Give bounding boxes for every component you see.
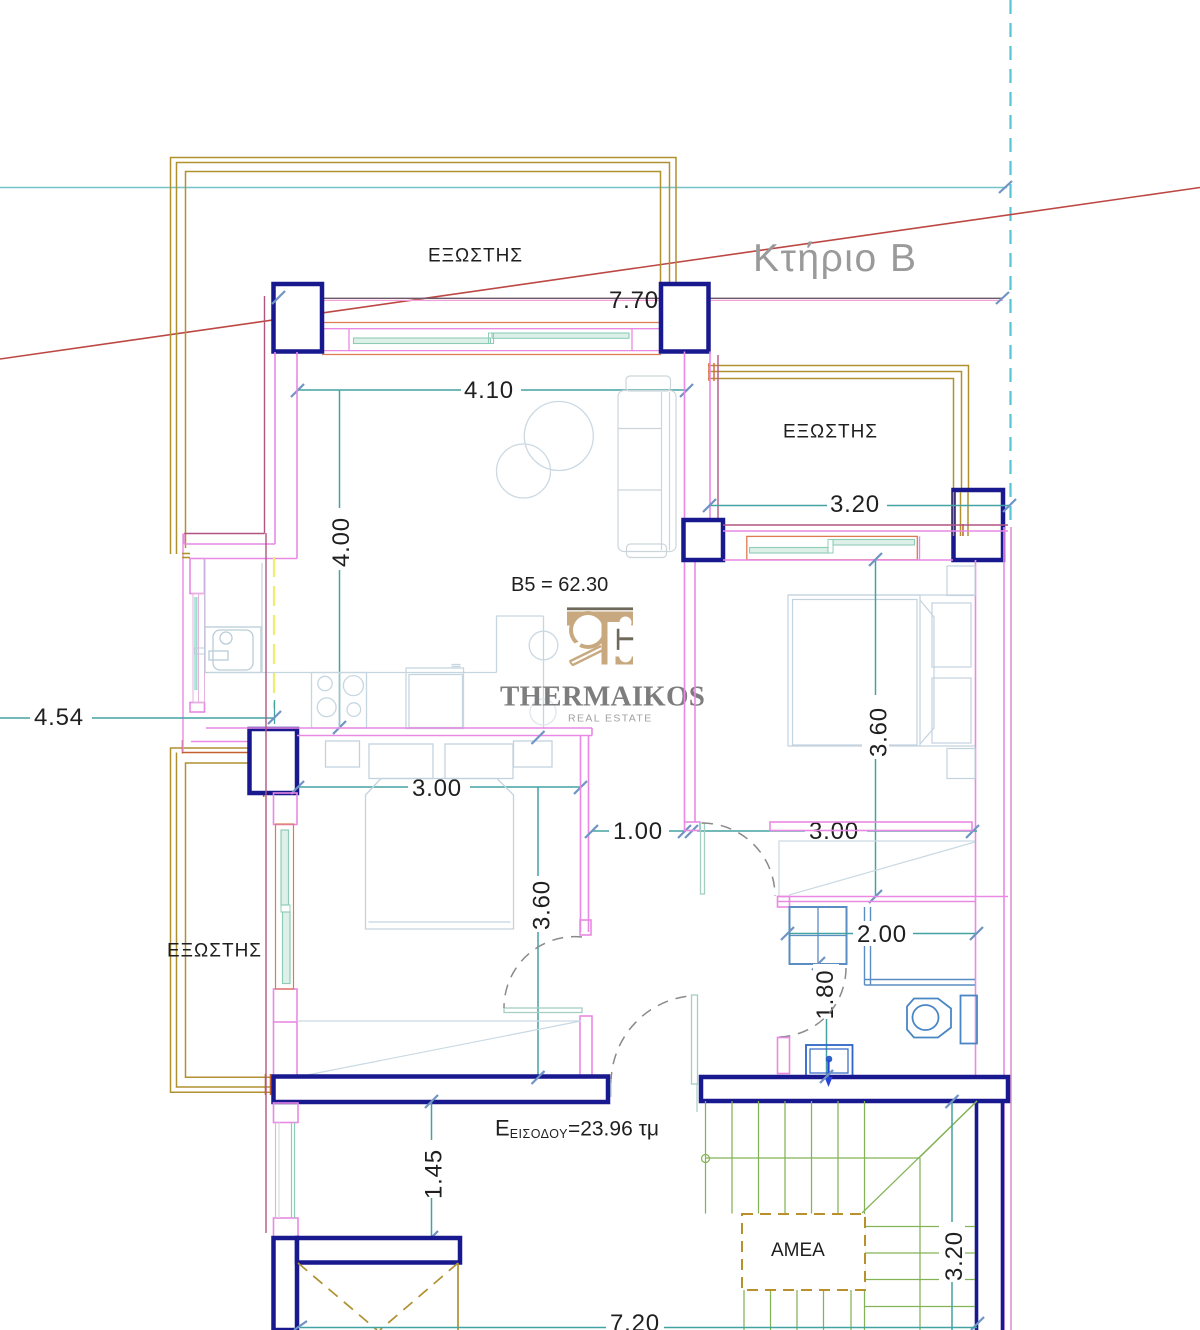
svg-text:REAL ESTATE: REAL ESTATE <box>568 713 653 725</box>
svg-text:4.00: 4.00 <box>328 517 355 567</box>
svg-text:3.60: 3.60 <box>529 880 556 930</box>
svg-text:ΕΞΩΣΤΗΣ: ΕΞΩΣΤΗΣ <box>167 941 262 962</box>
svg-text:3.60: 3.60 <box>866 707 893 757</box>
svg-text:1.45: 1.45 <box>421 1149 448 1199</box>
svg-text:Κτήριο Β: Κτήριο Β <box>753 237 918 280</box>
svg-text:7.20: 7.20 <box>610 1310 660 1330</box>
svg-text:B5 = 62.30: B5 = 62.30 <box>511 574 608 596</box>
svg-text:4.54: 4.54 <box>34 704 84 731</box>
svg-text:4.10: 4.10 <box>464 377 514 404</box>
svg-text:THERMAIKOS: THERMAIKOS <box>500 681 705 713</box>
svg-text:3.20: 3.20 <box>941 1231 968 1281</box>
svg-text:1.00: 1.00 <box>613 818 663 845</box>
svg-text:ΕΞΩΣΤΗΣ: ΕΞΩΣΤΗΣ <box>428 246 523 267</box>
svg-text:ΕΞΩΣΤΗΣ: ΕΞΩΣΤΗΣ <box>783 422 878 443</box>
svg-text:3.20: 3.20 <box>830 491 880 518</box>
svg-text:1.80: 1.80 <box>812 970 839 1020</box>
svg-text:AMEA: AMEA <box>771 1240 825 1261</box>
svg-text:2.00: 2.00 <box>857 921 907 948</box>
svg-text:7.70: 7.70 <box>609 287 659 314</box>
